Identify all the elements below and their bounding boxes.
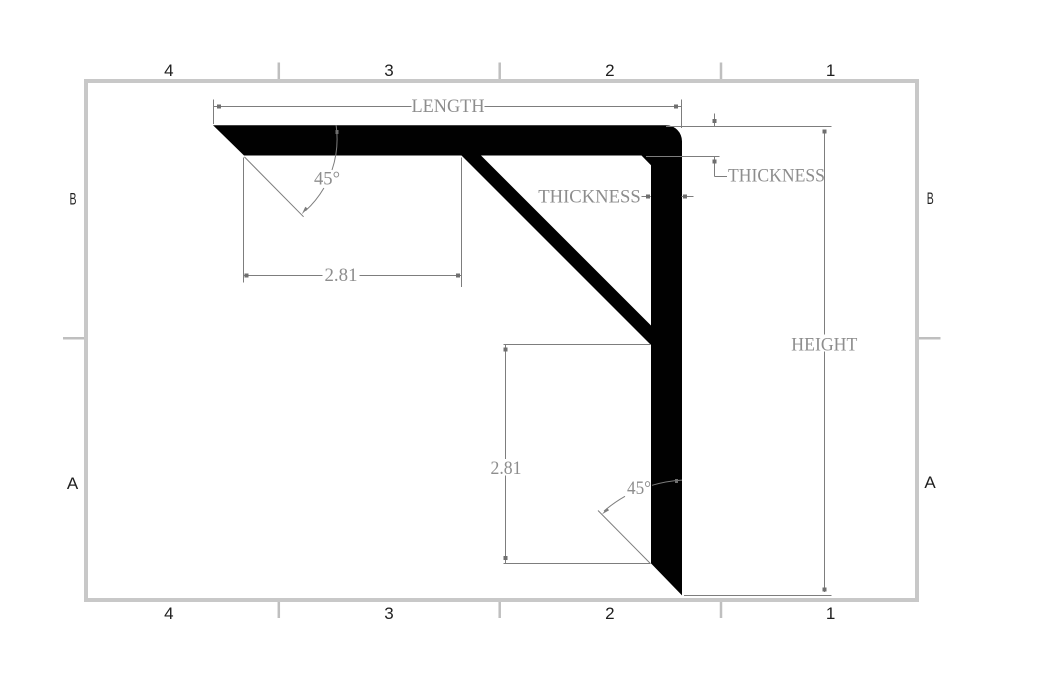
svg-text:THICKNESS: THICKNESS <box>538 187 641 208</box>
svg-text:3: 3 <box>384 61 393 80</box>
svg-text:2.81: 2.81 <box>491 458 522 479</box>
svg-text:4: 4 <box>164 61 173 80</box>
svg-text:THICKNESS: THICKNESS <box>728 165 825 186</box>
svg-text:4: 4 <box>164 604 173 623</box>
svg-text:LENGTH: LENGTH <box>412 96 485 117</box>
svg-text:B: B <box>927 189 934 208</box>
svg-text:A: A <box>67 474 79 493</box>
svg-text:1: 1 <box>826 604 835 623</box>
svg-text:A: A <box>924 473 936 492</box>
svg-text:2.81: 2.81 <box>325 265 358 286</box>
svg-text:1: 1 <box>826 61 835 80</box>
svg-text:2: 2 <box>605 604 614 623</box>
svg-text:45°: 45° <box>627 478 651 499</box>
svg-text:2: 2 <box>605 61 614 80</box>
svg-text:B: B <box>70 189 77 208</box>
svg-text:3: 3 <box>384 604 393 623</box>
svg-text:HEIGHT: HEIGHT <box>791 334 857 355</box>
svg-text:45°: 45° <box>314 168 340 189</box>
